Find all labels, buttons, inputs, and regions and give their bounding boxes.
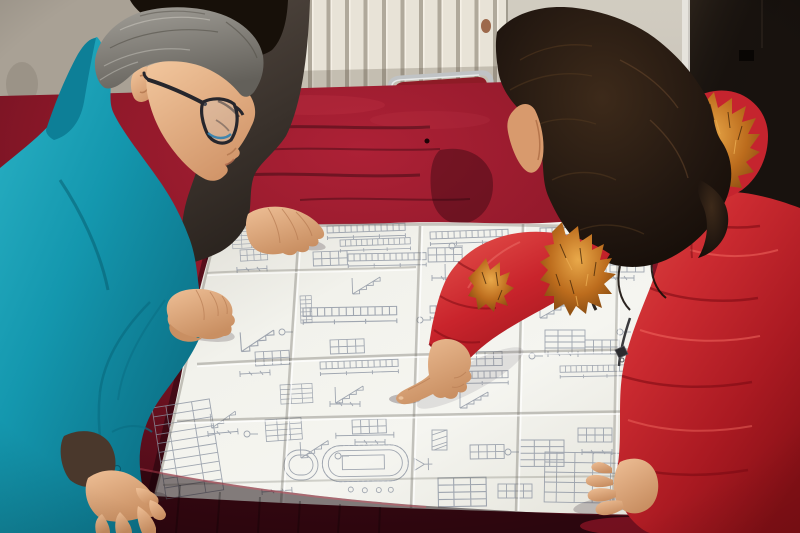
scene-canvas [0, 0, 800, 533]
photo-scene [0, 0, 800, 533]
vignette-overlay [0, 0, 800, 533]
